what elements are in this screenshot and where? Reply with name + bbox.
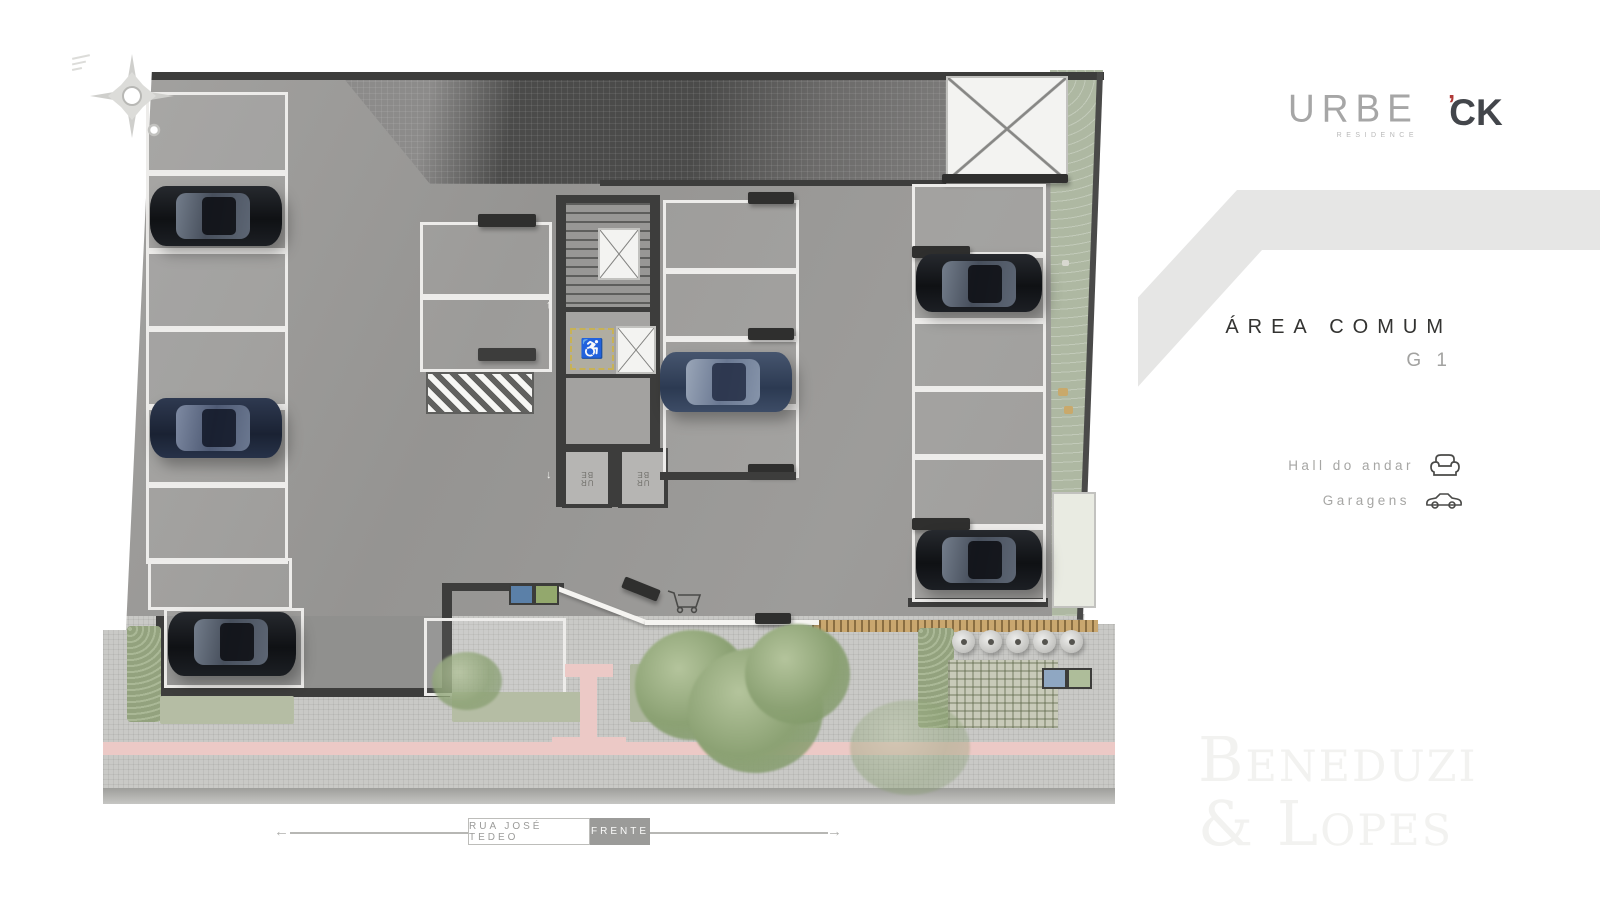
wheel-stop <box>755 613 791 624</box>
accessible-route <box>552 737 626 752</box>
tree-canopy-faint <box>850 700 970 795</box>
front-fence <box>812 620 1098 632</box>
flow-arrow-down: ↓ <box>546 470 552 481</box>
wall-paving-edge <box>600 180 946 186</box>
urbe-logo-text: URBE <box>1288 87 1418 131</box>
landscape-stone <box>1062 260 1069 266</box>
elevator-label: BE <box>636 470 650 478</box>
legend-hall-label: Hall do andar <box>1288 458 1414 473</box>
tree-canopy <box>745 624 850 724</box>
landscape-stone <box>1064 406 1073 414</box>
front-label: FRENTE <box>590 818 650 845</box>
shrub <box>432 652 502 710</box>
planter-pot <box>1060 630 1083 653</box>
planter-pot <box>1006 630 1029 653</box>
ventilation-shaft <box>946 76 1068 182</box>
utility-box-green <box>1067 668 1092 689</box>
elevator-label: UR <box>580 478 594 486</box>
watermark-line1: Beneduzi <box>1198 728 1478 792</box>
parking-stall <box>912 386 1046 460</box>
car <box>168 612 296 676</box>
floor-label: G 1 <box>1406 350 1452 372</box>
wheel-stop <box>478 214 536 227</box>
car <box>660 352 792 412</box>
landscape-stone <box>1058 388 1068 396</box>
parking-stall <box>420 294 552 372</box>
parking-stall <box>146 248 288 332</box>
parking-stall <box>420 222 552 300</box>
parking-stall <box>912 318 1046 392</box>
elevator-cabin: URBE <box>562 448 612 508</box>
shaft-sill <box>942 174 1068 183</box>
car <box>916 254 1042 312</box>
sofa-icon <box>1428 452 1462 478</box>
urbe-logo-subtitle: RESIDENCE <box>1288 132 1418 139</box>
wheel-stop <box>748 328 794 340</box>
no-parking-hatch <box>426 372 534 414</box>
wheelchair-icon: ♿ <box>580 337 604 361</box>
recycle-bin-green <box>534 584 559 605</box>
parking-stall <box>148 558 292 610</box>
car-icon <box>1424 490 1462 510</box>
accessible-route <box>580 676 597 740</box>
wind-lines <box>72 52 102 74</box>
shaft-hatch <box>616 326 656 374</box>
accessible-parking-symbol: ♿ <box>570 328 614 370</box>
car <box>150 186 282 246</box>
street-name-label: RUA JOSÉ TEDEO <box>468 818 590 845</box>
legend-garage-label: Garagens <box>1323 493 1410 508</box>
flow-arrow-up: ↑ <box>546 300 552 311</box>
planting-bed <box>160 696 294 724</box>
ramp-hatch <box>1052 492 1096 608</box>
wall-stall-end <box>660 472 796 480</box>
stair-landing-shaft <box>598 228 640 280</box>
core-corridor <box>566 378 650 444</box>
wheel-stop <box>912 518 970 530</box>
watermark-line2: & Lopes <box>1198 792 1478 856</box>
wheel-stop <box>748 192 794 204</box>
elevator-label: BE <box>580 470 594 478</box>
planter-pot <box>979 630 1002 653</box>
ck-logo-accent: ’ <box>1448 89 1455 119</box>
parking-stall <box>146 482 288 564</box>
cart-icon <box>662 588 704 614</box>
scale-line <box>290 832 468 834</box>
planter-pot <box>1033 630 1056 653</box>
car <box>916 530 1042 590</box>
scale-line <box>650 832 828 834</box>
hedge <box>127 626 161 722</box>
beneduzi-lopes-watermark: Beneduzi & Lopes <box>1198 728 1478 856</box>
street-curb <box>103 788 1115 804</box>
legend-garage: Garagens <box>1323 490 1462 510</box>
elevator-label: UR <box>636 478 650 486</box>
scale-arrow-right: → <box>827 823 842 840</box>
paving-texture <box>345 80 947 184</box>
decorative-ribbon <box>1100 185 1600 400</box>
parking-stall <box>663 200 799 274</box>
ck-logo-text: CK <box>1449 92 1502 133</box>
utility-box-blue <box>1042 668 1067 689</box>
page-title: ÁREA COMUM <box>1225 316 1452 339</box>
floor-plan-page: ♿ URBE URBE ↑ ↓ <box>0 0 1600 900</box>
ck-logo: ’CK <box>1452 92 1503 134</box>
planter-pot <box>952 630 975 653</box>
recycle-bin-blue <box>509 584 534 605</box>
legend-hall: Hall do andar <box>1288 452 1462 478</box>
scale-arrow-left: ← <box>274 823 289 840</box>
car <box>150 398 282 458</box>
urbe-logo: URBE RESIDENCE <box>1288 88 1418 139</box>
